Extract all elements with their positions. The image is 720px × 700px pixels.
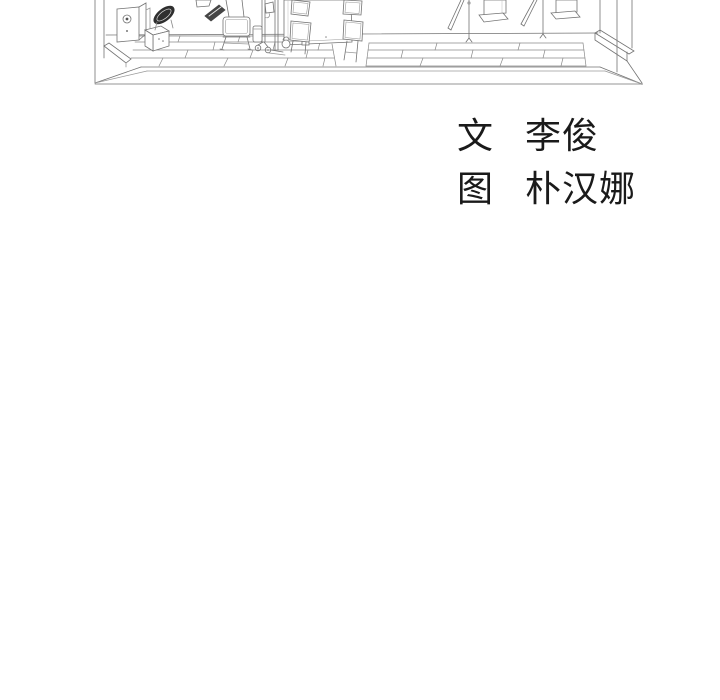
writer-name: 李俊	[525, 107, 599, 159]
easel-1	[448, 0, 472, 42]
credit-row-artist: 图 朴汉娜	[457, 159, 636, 212]
floor-planks-right	[366, 43, 586, 66]
comic-page: 文 李俊 图 朴汉娜	[0, 0, 720, 700]
small-crate	[145, 26, 169, 51]
right-wall	[595, 0, 643, 85]
credits-block: 文 李俊 图 朴汉娜	[457, 106, 636, 212]
stage-front-edge	[95, 67, 642, 84]
artist-role-label: 图	[457, 160, 495, 212]
stool-1	[479, 0, 508, 22]
equipment-stand	[253, 0, 274, 53]
easel-2	[521, 0, 546, 38]
credit-row-writer: 文 李俊	[457, 106, 636, 159]
writer-role-label: 文	[457, 107, 495, 159]
school-chair	[220, 0, 252, 50]
satchel	[196, 0, 225, 21]
interior-line-art-illustration	[93, 0, 645, 90]
artist-name: 朴汉娜	[525, 160, 636, 212]
stool-dark	[151, 3, 177, 27]
stool-2	[551, 0, 580, 19]
